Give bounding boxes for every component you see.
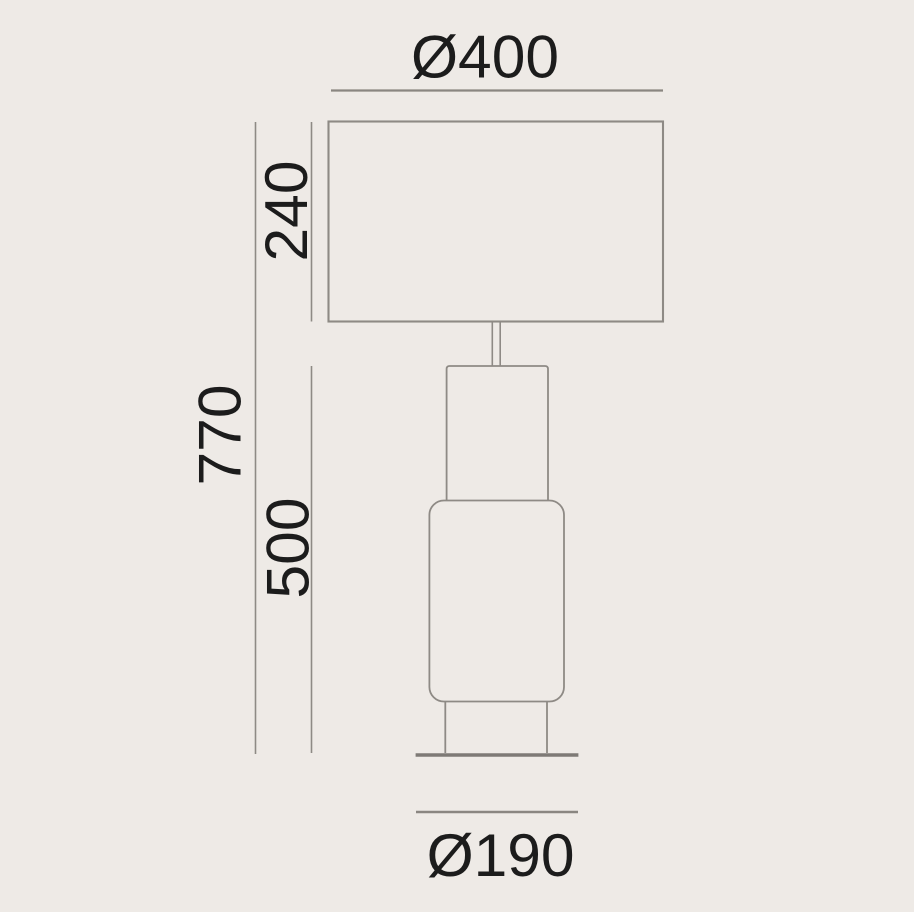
svg-text:240: 240	[252, 161, 320, 262]
svg-text:500: 500	[254, 498, 322, 599]
svg-text:Ø190: Ø190	[427, 821, 575, 889]
svg-text:Ø400: Ø400	[411, 23, 559, 91]
svg-text:770: 770	[186, 385, 254, 486]
